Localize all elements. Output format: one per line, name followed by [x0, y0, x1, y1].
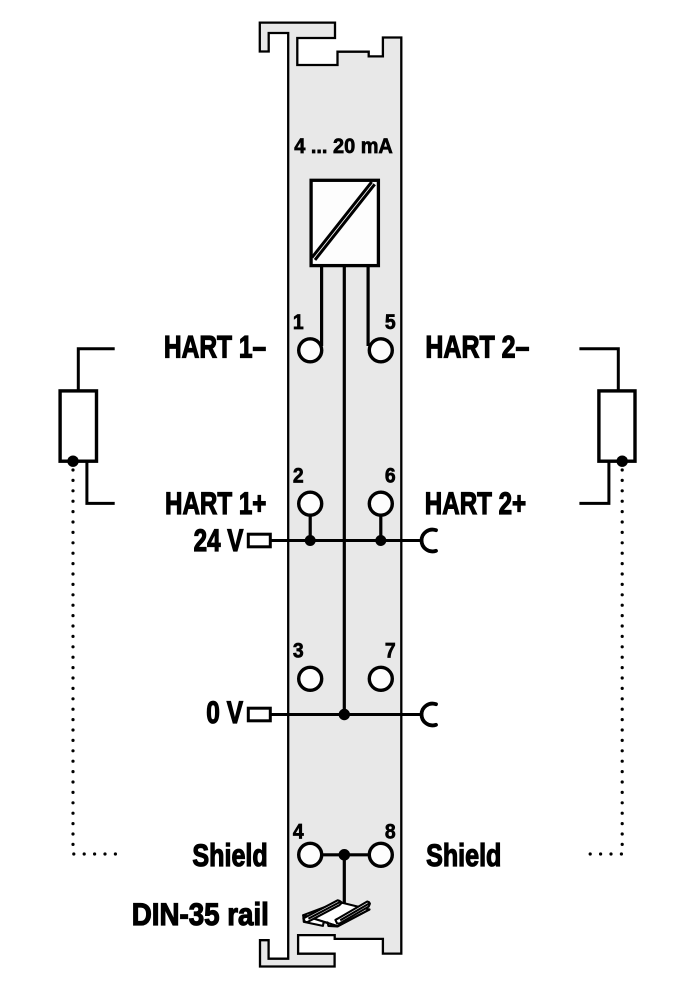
- svg-text:2: 2: [293, 465, 304, 488]
- svg-text:HART 2–: HART 2–: [425, 329, 529, 364]
- svg-text:Shield: Shield: [426, 839, 501, 874]
- svg-text:24 V: 24 V: [194, 523, 244, 558]
- svg-text:1: 1: [293, 311, 304, 334]
- svg-text:0 V: 0 V: [206, 695, 243, 730]
- svg-text:5: 5: [385, 311, 396, 334]
- svg-text:4: 4: [293, 821, 304, 844]
- svg-text:8: 8: [385, 821, 396, 844]
- svg-text:Shield: Shield: [192, 839, 267, 874]
- svg-text:7: 7: [385, 640, 396, 663]
- svg-text:HART 1+: HART 1+: [165, 486, 266, 521]
- svg-text:4 ... 20 mA: 4 ... 20 mA: [294, 135, 393, 159]
- svg-text:3: 3: [293, 640, 304, 663]
- svg-text:6: 6: [385, 465, 396, 488]
- svg-text:HART 2+: HART 2+: [425, 486, 526, 521]
- svg-text:HART 1–: HART 1–: [164, 330, 266, 364]
- svg-text:DIN-35 rail: DIN-35 rail: [132, 898, 269, 933]
